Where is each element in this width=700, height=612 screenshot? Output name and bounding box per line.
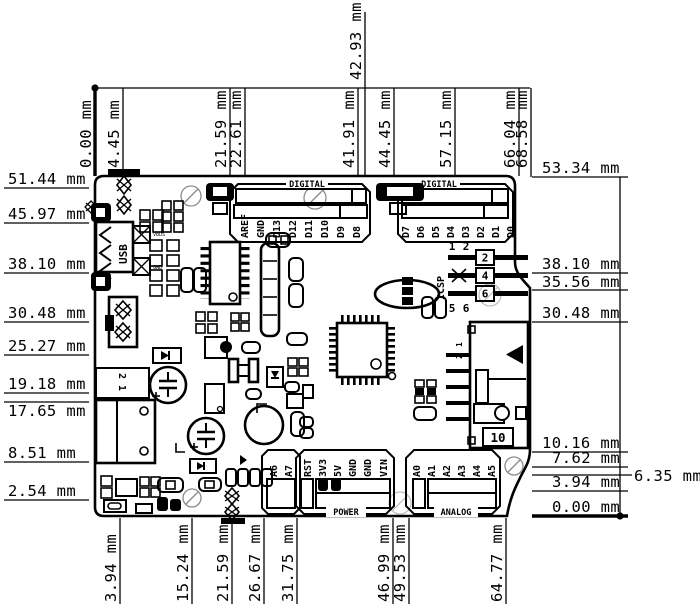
dim-left-1: 45.97 mm — [8, 205, 86, 223]
pin-label: D11 — [304, 220, 315, 238]
dim-top-5: 42.93 mm — [347, 2, 365, 80]
net-tie-bottom — [221, 488, 245, 524]
pin-label: GND — [363, 459, 374, 477]
dim-right-1: 38.10 mm — [542, 255, 620, 273]
dim-bottom-4: 31.75 mm — [279, 524, 297, 602]
dim-bottom-0: 3.94 mm — [102, 534, 120, 602]
dim-left-8: 2.54 mm — [8, 482, 76, 500]
usb-contact-icon — [100, 245, 111, 261]
usb-connector: USB VBUS GND — [91, 203, 165, 291]
icsp-pin-number: 5 — [449, 302, 456, 315]
dim-right-2: 35.56 mm — [542, 273, 620, 291]
pin-label: D2 — [476, 226, 487, 238]
pin-label: D4 — [446, 226, 457, 238]
dim-right-6: 6.35 mm — [634, 467, 700, 485]
pin-label: D7 — [401, 226, 412, 238]
diode — [190, 459, 216, 473]
power-header: POWER RST 3V3 5V GND GND VIN — [296, 450, 394, 518]
usb-pad-label: VBUS — [153, 232, 165, 238]
pin1-triangle-icon — [506, 345, 523, 364]
dimension-drawing: 0.00 mm 4.45 mm 21.59 mm 22.61 mm 41.91 … — [0, 0, 700, 612]
pin-label: A1 — [427, 465, 438, 477]
pin-label: 3V3 — [318, 459, 329, 477]
dim-right-0: 53.34 mm — [542, 159, 620, 177]
dim-bottom-1: 15.24 mm — [174, 524, 192, 602]
aux-header: A6 A7 — [262, 450, 300, 514]
dimensions-bottom: 3.94 mm 15.24 mm 21.59 mm 26.67 mm 31.75… — [102, 518, 506, 604]
usb-label: USB — [117, 244, 130, 264]
dim-top-1: 4.45 mm — [105, 100, 123, 168]
pin-label: AREF — [240, 214, 251, 238]
dimensions-left: 51.44 mm 45.97 mm 38.10 mm 30.48 mm 25.2… — [4, 170, 89, 500]
icsp-box-label: 4 — [482, 270, 489, 283]
power-title: POWER — [333, 508, 359, 518]
resistor-network — [261, 243, 279, 336]
electrolytic-capacitor — [150, 367, 186, 403]
pin-label: 5V — [333, 465, 344, 477]
drawing-canvas: 0.00 mm 4.45 mm 21.59 mm 22.61 mm 41.91 … — [0, 0, 700, 612]
pin-label: D8 — [352, 226, 363, 238]
dim-right-3: 30.48 mm — [542, 304, 620, 322]
dim-top-7: 57.15 mm — [437, 90, 455, 168]
dim-right-5: 7.62 mm — [552, 449, 620, 467]
dim-bottom-6: 49.53 mm — [391, 524, 409, 602]
dim-top-3: 22.61 mm — [227, 90, 245, 168]
dim-right-7: 3.94 mm — [552, 473, 620, 491]
diode-mark-icon — [240, 455, 247, 465]
electrolytic-capacitor — [188, 418, 224, 454]
diode — [267, 367, 283, 387]
icsp-box-label: 2 — [482, 252, 489, 265]
connector-pin-number: 2 — [455, 354, 464, 359]
pin-label: A4 — [472, 465, 483, 477]
digital-left-title: DIGITAL — [289, 180, 325, 190]
pin-label: A0 — [412, 465, 423, 477]
dim-left-2: 38.10 mm — [8, 255, 86, 273]
icsp-pin-number: 1 — [449, 240, 456, 253]
pin-label: A2 — [442, 465, 453, 477]
dim-left-4: 25.27 mm — [8, 337, 86, 355]
pin-label: A6 — [269, 465, 280, 477]
dim-bottom-2: 21.59 mm — [214, 524, 232, 602]
crystal-oscillator — [375, 277, 439, 308]
power-jack-pins: 2 1 — [116, 373, 127, 391]
right-edge-connector: 10 1 2 — [446, 322, 528, 448]
dim-top-6: 44.45 mm — [376, 90, 394, 168]
pin-label: GND — [256, 220, 267, 238]
dim-left-7: 8.51 mm — [8, 444, 76, 462]
connector-pin-number: 1 — [455, 342, 464, 347]
polyfuse — [105, 297, 137, 347]
dim-top-4: 41.91 mm — [340, 90, 358, 168]
dim-top-9: 68.58 mm — [513, 90, 531, 168]
pin-label: GND — [348, 459, 359, 477]
pin-label: A5 — [487, 465, 498, 477]
mcu-qfp-chip — [333, 319, 396, 381]
dim-left-3: 30.48 mm — [8, 304, 86, 322]
pin-label: D0 — [506, 226, 517, 238]
reset-button-footprint — [205, 384, 224, 413]
dim-top-0: 0.00 mm — [77, 100, 95, 168]
transistor — [205, 337, 232, 358]
dim-left-0: 51.44 mm — [8, 170, 86, 188]
dimensions-right: 53.34 mm 38.10 mm 35.56 mm 30.48 mm 10.1… — [532, 159, 700, 520]
dim-left-5: 19.18 mm — [8, 375, 86, 393]
icsp-pin-number: 2 — [463, 240, 470, 253]
icsp-box-label: 6 — [482, 288, 489, 301]
dim-bottom-3: 26.67 mm — [246, 524, 264, 602]
icsp-pin-number: 6 — [463, 302, 470, 315]
pin-label: VIN — [379, 459, 390, 477]
pin-label: A3 — [457, 465, 468, 477]
dim-left-6: 17.65 mm — [8, 402, 86, 420]
digital-header-left: DIGITAL AREF GND D13 D12 D11 D10 D9 D8 — [230, 178, 370, 242]
pin-label: RST — [303, 459, 314, 477]
analog-header: ANALOG A0 A1 A2 A3 A4 A5 — [406, 450, 500, 518]
analog-title: ANALOG — [441, 508, 472, 518]
pin-label: D10 — [320, 220, 331, 238]
dim-right-8: 0.00 mm — [552, 498, 620, 516]
pin-label: A7 — [284, 465, 295, 477]
pin-label: D1 — [491, 226, 502, 238]
pin-label: D6 — [416, 226, 427, 238]
dimensions-top: 0.00 mm 4.45 mm 21.59 mm 22.61 mm 41.91 … — [77, 2, 531, 177]
voltage-regulator — [229, 359, 258, 382]
round-component — [245, 406, 283, 444]
dim-bottom-7: 64.77 mm — [488, 524, 506, 602]
digital-right-title: DIGITAL — [421, 180, 457, 190]
pin-label: D5 — [431, 226, 442, 238]
pin-label: D3 — [461, 226, 472, 238]
connector-ref: 10 — [490, 430, 505, 445]
usb-bridge-soic-chip — [205, 242, 245, 304]
usb-contact-icon — [100, 227, 111, 243]
diode — [153, 348, 181, 363]
pin-label: D9 — [336, 226, 347, 238]
